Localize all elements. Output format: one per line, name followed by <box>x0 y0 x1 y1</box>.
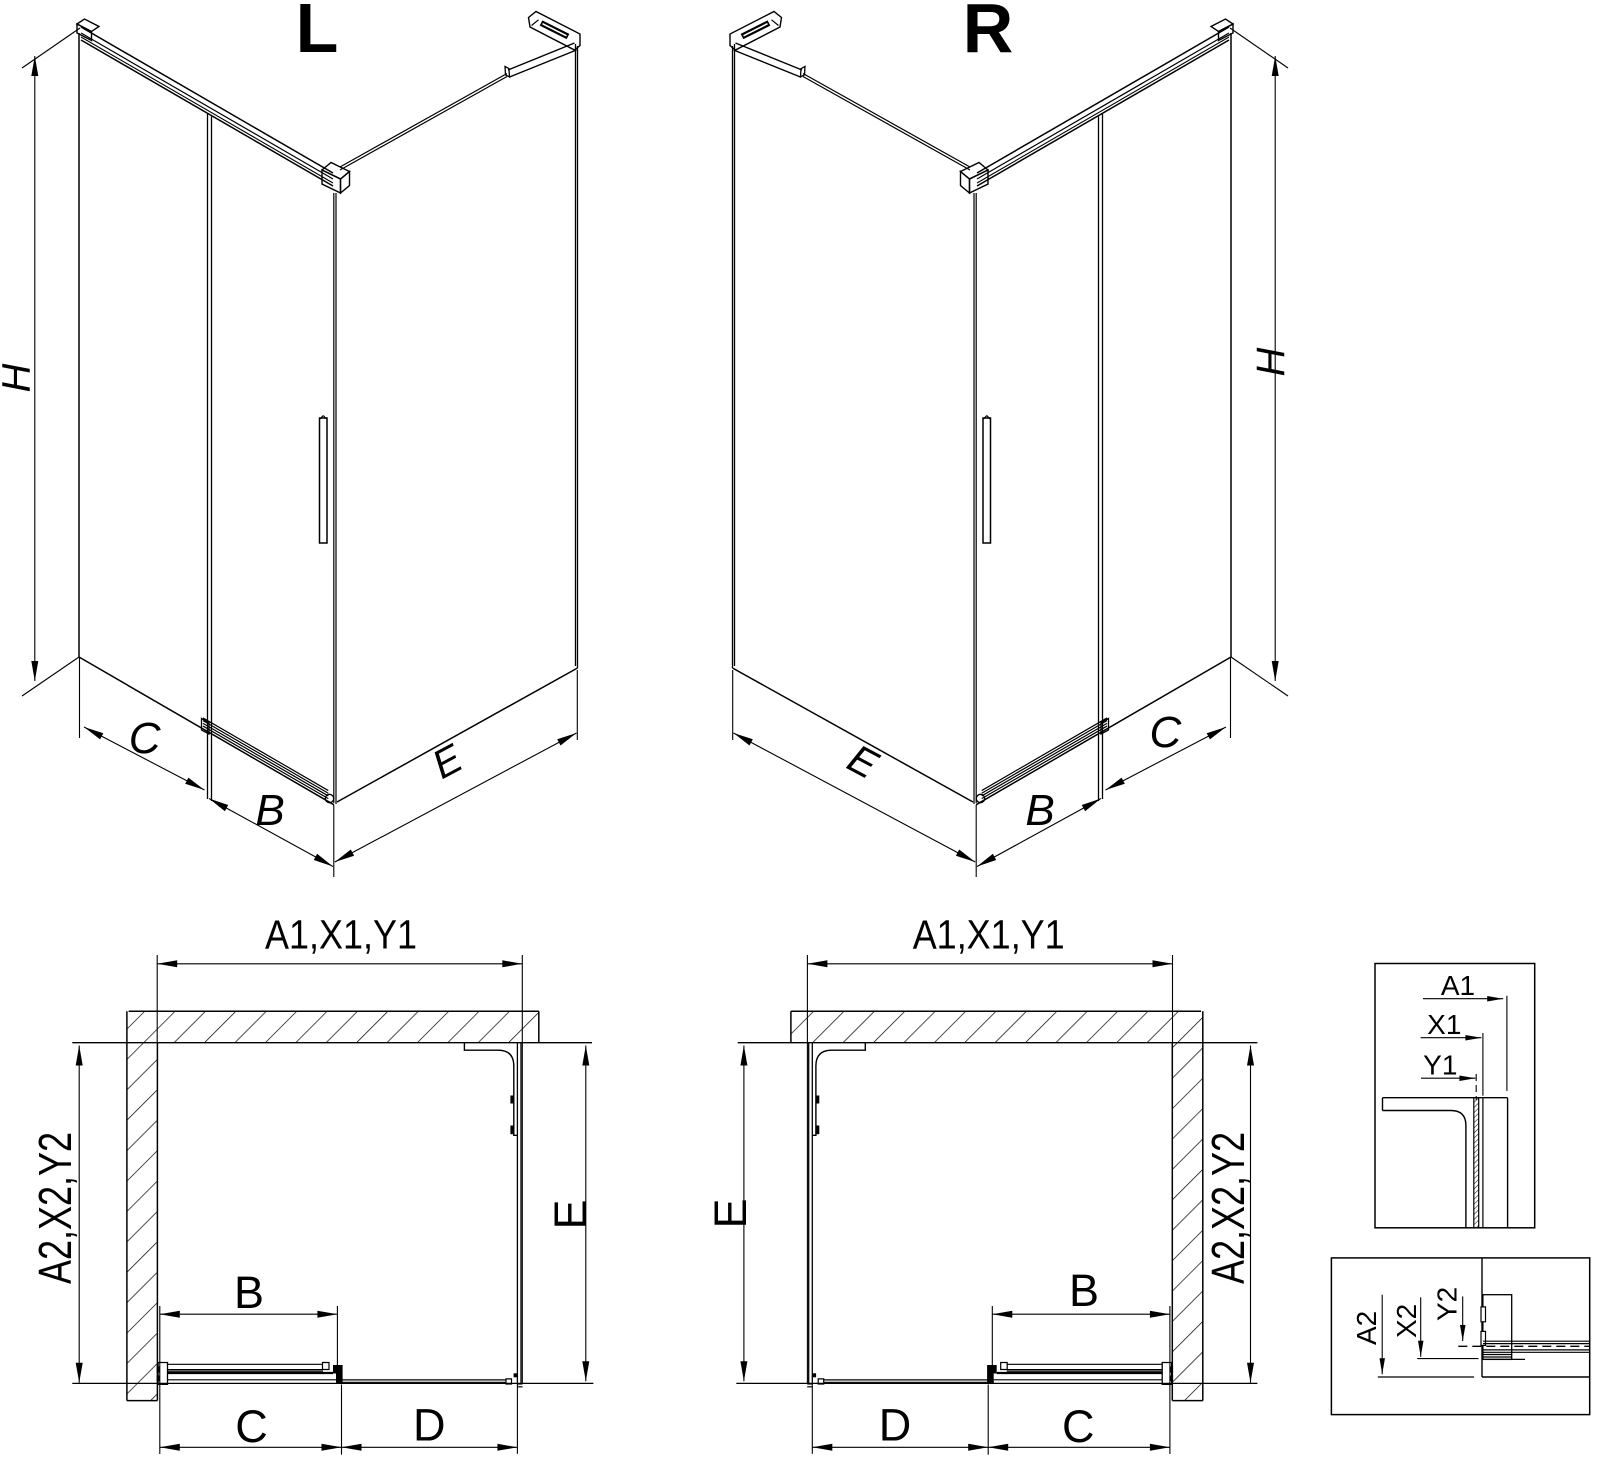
svg-text:A1: A1 <box>1441 970 1475 1001</box>
svg-text:Y2: Y2 <box>1432 1287 1463 1321</box>
svg-text:C: C <box>1150 708 1183 757</box>
svg-text:E: E <box>705 1198 756 1228</box>
svg-text:A1,X1,Y1: A1,X1,Y1 <box>913 912 1065 958</box>
svg-text:A2,X2,Y2: A2,X2,Y2 <box>1202 1132 1254 1284</box>
svg-text:B: B <box>234 1267 264 1318</box>
svg-text:X2: X2 <box>1391 1304 1422 1338</box>
svg-text:L: L <box>296 0 339 67</box>
svg-text:A2,X2,Y2: A2,X2,Y2 <box>29 1132 81 1284</box>
svg-text:H: H <box>1249 347 1293 376</box>
svg-text:E: E <box>545 1199 596 1229</box>
svg-text:Y1: Y1 <box>1423 1049 1457 1080</box>
svg-text:A1,X1,Y1: A1,X1,Y1 <box>265 912 417 958</box>
svg-text:H: H <box>0 363 39 392</box>
svg-text:A2: A2 <box>1351 1311 1382 1345</box>
svg-text:X1: X1 <box>1427 1009 1461 1040</box>
svg-text:B: B <box>1069 1265 1099 1316</box>
svg-text:B: B <box>1025 786 1054 835</box>
svg-text:D: D <box>879 1400 912 1451</box>
svg-text:D: D <box>413 1400 446 1451</box>
svg-text:C: C <box>235 1401 268 1452</box>
svg-text:C: C <box>1062 1401 1095 1452</box>
svg-text:R: R <box>963 0 1014 67</box>
svg-text:C: C <box>129 714 162 763</box>
svg-text:B: B <box>255 786 284 835</box>
